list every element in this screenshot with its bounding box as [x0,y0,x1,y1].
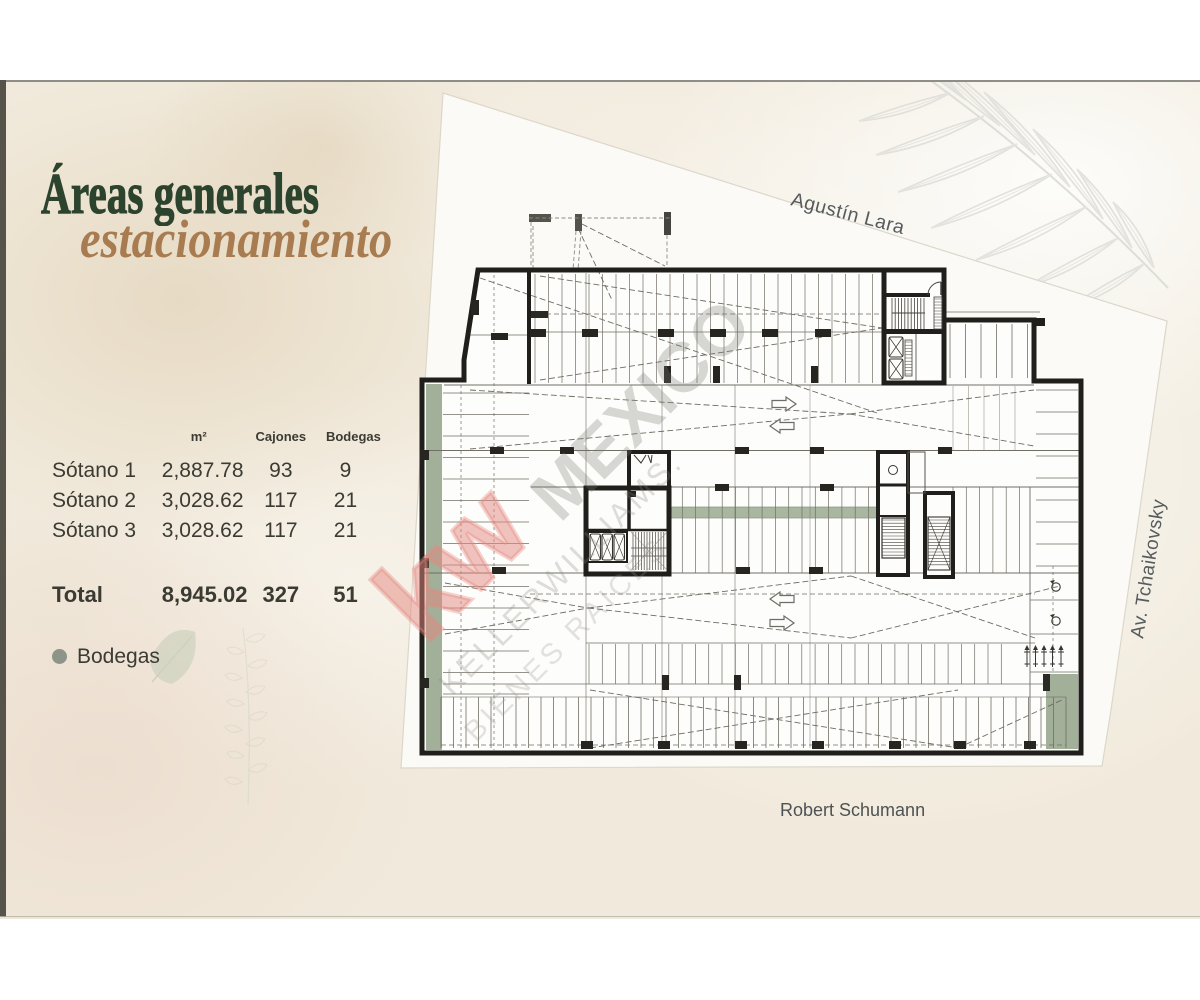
svg-text:Robert Schumann: Robert Schumann [780,800,925,820]
